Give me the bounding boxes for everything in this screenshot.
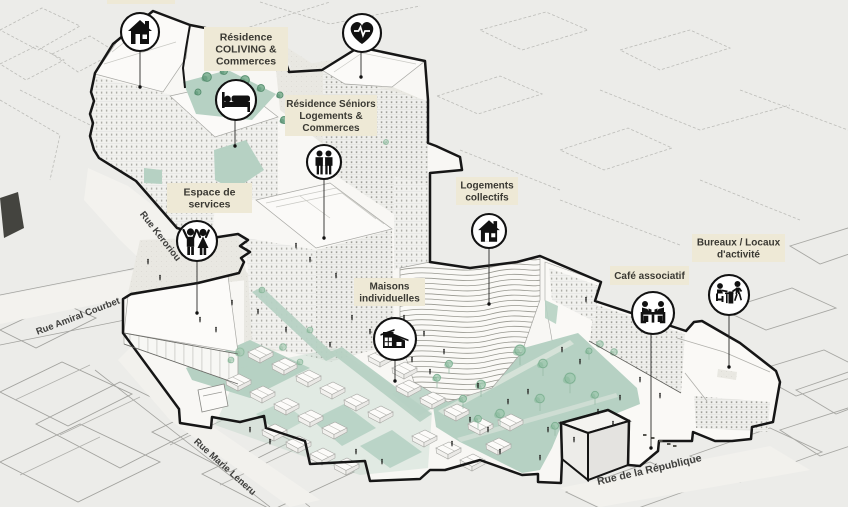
svg-text:individuelles: individuelles <box>359 294 420 305</box>
svg-text:Logements &: Logements & <box>299 111 362 122</box>
svg-text:Logements: Logements <box>460 181 514 192</box>
svg-text:Bureaux / Locaux: Bureaux / Locaux <box>697 238 781 249</box>
svg-text:Commerces: Commerces <box>216 56 276 68</box>
svg-text:COLIVING &: COLIVING & <box>215 44 277 56</box>
svg-text:Café associatif: Café associatif <box>614 271 685 282</box>
svg-text:d'activité: d'activité <box>717 250 760 261</box>
svg-text:Résidence: Résidence <box>220 32 273 44</box>
svg-text:Commerces: Commerces <box>302 123 360 134</box>
svg-text:collectifs: collectifs <box>465 193 509 204</box>
svg-text:Espace de: Espace de <box>184 187 236 199</box>
svg-text:services: services <box>188 199 230 211</box>
svg-text:Maisons: Maisons <box>369 282 409 293</box>
svg-text:Résidence Séniors: Résidence Séniors <box>286 99 376 110</box>
